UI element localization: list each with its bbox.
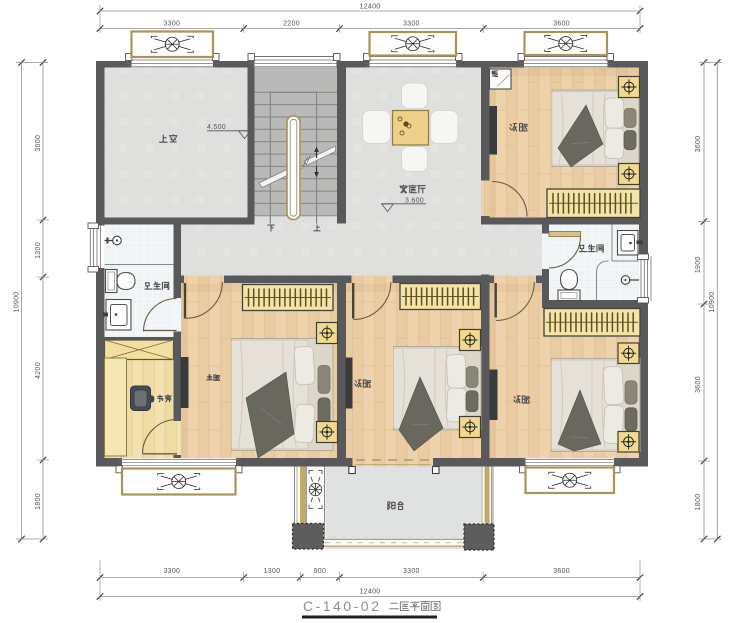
- svg-text:4.500: 4.500: [207, 124, 226, 131]
- svg-text:3300: 3300: [403, 21, 420, 28]
- svg-text:2200: 2200: [283, 21, 300, 28]
- svg-text:1300: 1300: [35, 242, 42, 259]
- svg-text:1800: 1800: [35, 493, 42, 510]
- svg-text:3600: 3600: [553, 568, 570, 575]
- svg-text:3600: 3600: [553, 21, 570, 28]
- svg-text:10900: 10900: [709, 292, 716, 313]
- svg-text:3300: 3300: [163, 568, 180, 575]
- svg-text:1300: 1300: [264, 568, 281, 575]
- svg-text:3300: 3300: [163, 21, 180, 28]
- svg-text:12400: 12400: [360, 4, 381, 11]
- svg-text:1800: 1800: [695, 494, 702, 511]
- svg-text:C-140-02: C-140-02: [303, 598, 381, 614]
- svg-text:3600: 3600: [695, 376, 702, 393]
- svg-text:12400: 12400: [360, 589, 381, 596]
- svg-text:900: 900: [314, 568, 327, 575]
- svg-text:10900: 10900: [14, 292, 21, 313]
- svg-text:3300: 3300: [403, 568, 420, 575]
- svg-text:3600: 3600: [35, 135, 42, 152]
- svg-text:3600: 3600: [695, 136, 702, 153]
- svg-text:4200: 4200: [35, 362, 42, 379]
- svg-text:1900: 1900: [695, 256, 702, 273]
